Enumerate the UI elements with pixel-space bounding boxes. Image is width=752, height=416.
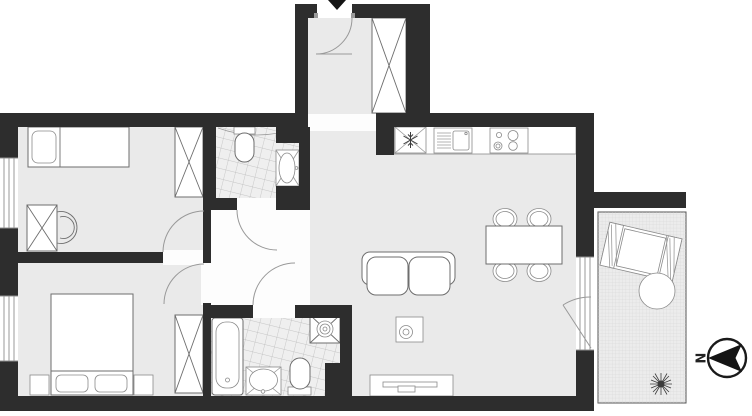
hallway-floor — [211, 208, 310, 305]
pillow-right — [95, 375, 127, 392]
bedroom2-door-threshold — [201, 263, 213, 305]
pillow-left — [56, 375, 88, 392]
bathroom-washbasin — [246, 367, 281, 395]
round-table — [639, 273, 675, 309]
north-compass-icon: N — [692, 339, 747, 377]
kitchen-sink — [434, 128, 472, 153]
shower — [310, 315, 340, 343]
tv-sideboard — [370, 375, 453, 396]
floor-plan-svg: N — [0, 0, 752, 416]
toilet-bowl — [235, 133, 254, 162]
fridge — [395, 127, 426, 153]
nightstand-right — [134, 375, 153, 395]
bedroom2-window — [0, 296, 18, 361]
bathroom-toilet — [288, 358, 311, 395]
kitchen — [394, 126, 576, 154]
wc-washbasin — [276, 150, 299, 186]
bathtub — [212, 318, 243, 395]
compass-label: N — [692, 353, 707, 364]
dining-table — [486, 226, 562, 264]
stove — [490, 128, 528, 153]
vestibule-threshold — [308, 114, 376, 131]
floor-plan-canvas: N — [0, 0, 752, 416]
balcony — [598, 212, 686, 403]
pillow — [32, 131, 56, 163]
plant-icon — [650, 373, 672, 395]
nightstand-left — [30, 375, 49, 395]
bedroom1-door-threshold — [163, 250, 205, 265]
bedroom1-window — [0, 158, 18, 228]
coffee-table — [396, 317, 423, 342]
wc-door-threshold — [237, 196, 278, 212]
bathroom-door-threshold — [253, 303, 295, 318]
entrance-vestibule — [372, 18, 406, 113]
